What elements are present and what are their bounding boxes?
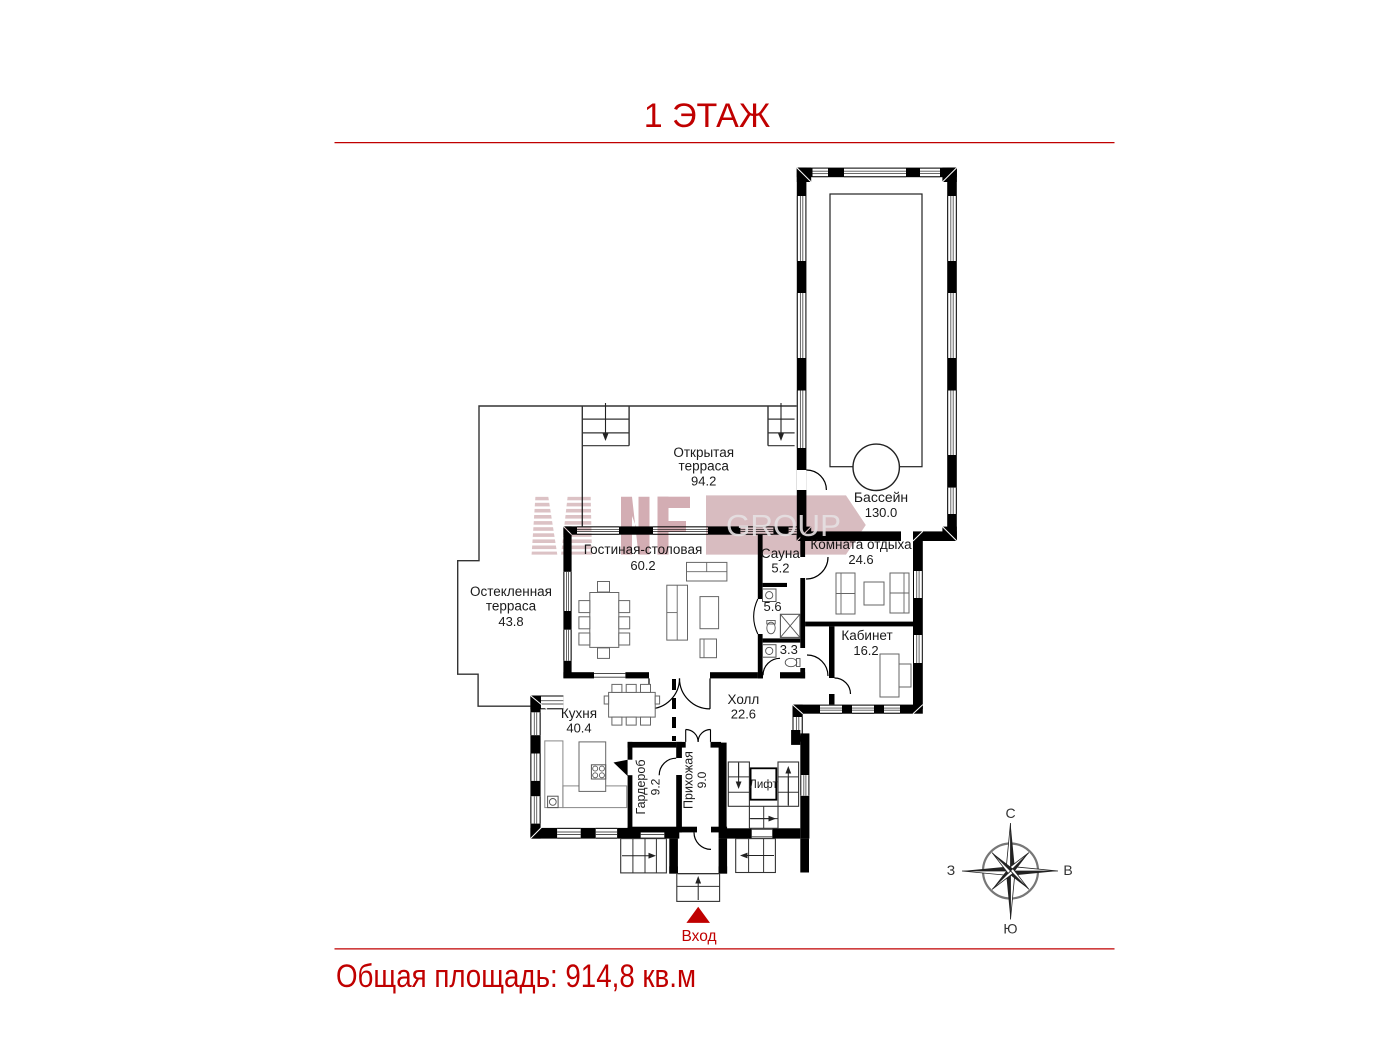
svg-text:терраса: терраса [486, 599, 537, 614]
svg-text:Ю: Ю [1003, 921, 1017, 937]
svg-text:60.2: 60.2 [630, 558, 655, 573]
svg-text:16.2: 16.2 [853, 643, 878, 658]
svg-text:З: З [947, 862, 955, 878]
svg-text:43.8: 43.8 [498, 614, 523, 629]
svg-text:В: В [1063, 862, 1072, 878]
svg-text:24.6: 24.6 [848, 552, 873, 567]
svg-text:Прихожая: Прихожая [682, 751, 696, 809]
svg-text:9.0: 9.0 [695, 771, 709, 788]
svg-text:9.2: 9.2 [649, 778, 663, 795]
svg-text:терраса: терраса [679, 459, 730, 474]
svg-text:Кухня: Кухня [561, 706, 597, 721]
svg-text:22.6: 22.6 [731, 707, 756, 722]
svg-text:Вход: Вход [681, 928, 716, 945]
svg-text:40.4: 40.4 [566, 721, 591, 736]
svg-text:94.2: 94.2 [691, 474, 716, 489]
svg-text:Бассейн: Бассейн [854, 489, 908, 505]
svg-text:5.6: 5.6 [764, 599, 782, 614]
svg-text:Лифт: Лифт [749, 779, 778, 791]
svg-text:Гардероб: Гардероб [634, 760, 648, 815]
svg-text:С: С [1005, 805, 1015, 821]
svg-text:Холл: Холл [727, 692, 759, 707]
svg-text:GROUP: GROUP [726, 508, 841, 543]
svg-text:Общая площадь: 914,8 кв.м: Общая площадь: 914,8 кв.м [336, 958, 696, 994]
svg-text:3.3: 3.3 [780, 642, 798, 657]
svg-text:Остекленная: Остекленная [470, 584, 552, 599]
svg-text:5.2: 5.2 [771, 561, 789, 576]
svg-text:1 ЭТАЖ: 1 ЭТАЖ [644, 97, 771, 135]
svg-text:Кабинет: Кабинет [841, 628, 892, 643]
svg-text:130.0: 130.0 [865, 505, 898, 520]
